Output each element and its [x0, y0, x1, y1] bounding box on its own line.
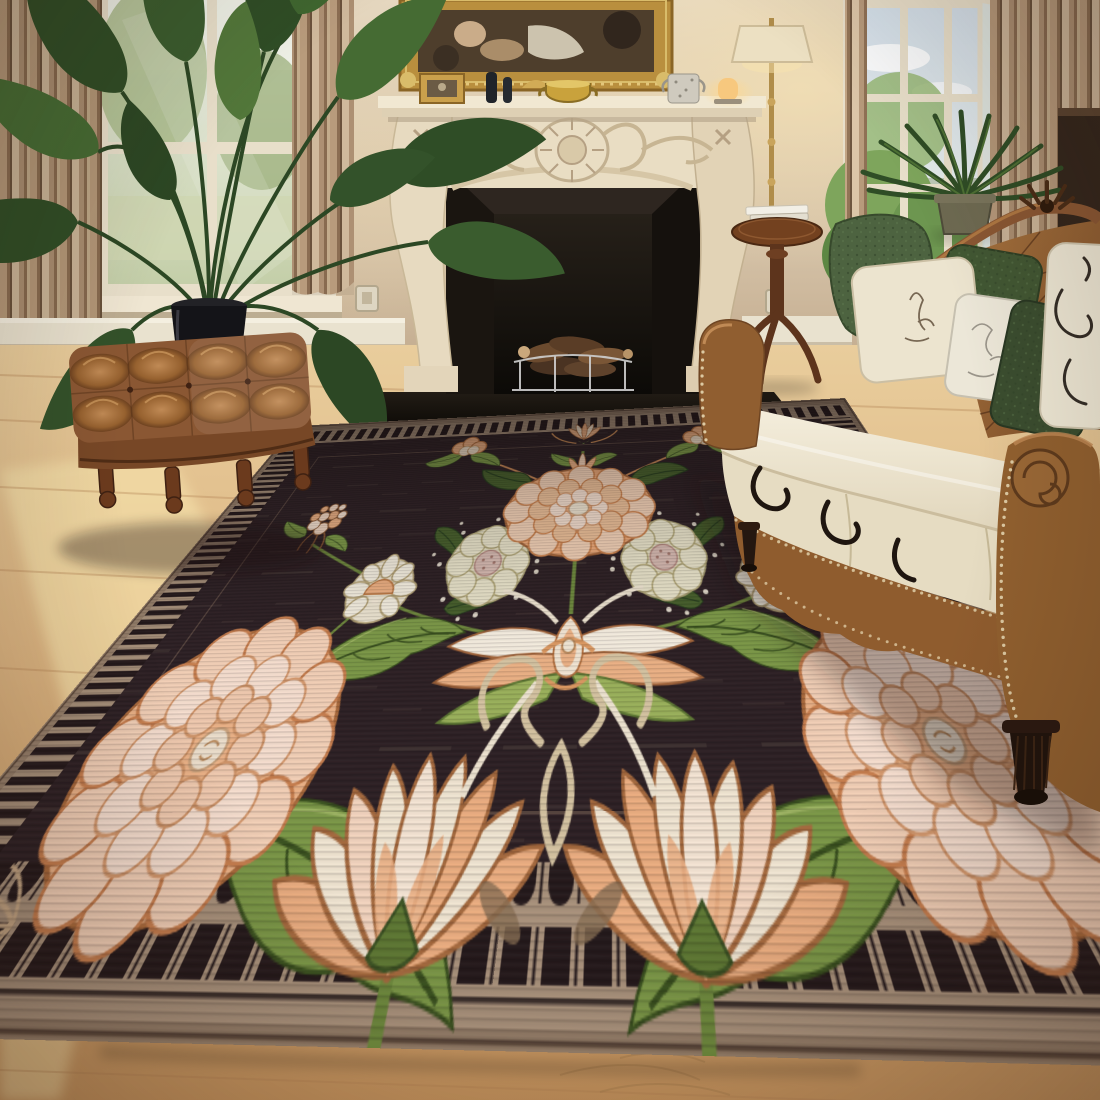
sofa-left-arm: [699, 320, 764, 450]
ottoman: [58, 331, 322, 574]
rug-edge-shadow: [100, 1046, 860, 1076]
living-room-scene: [0, 0, 1100, 1100]
foreground-furniture: [0, 0, 1100, 1100]
sofa-pillows: [830, 215, 1100, 443]
